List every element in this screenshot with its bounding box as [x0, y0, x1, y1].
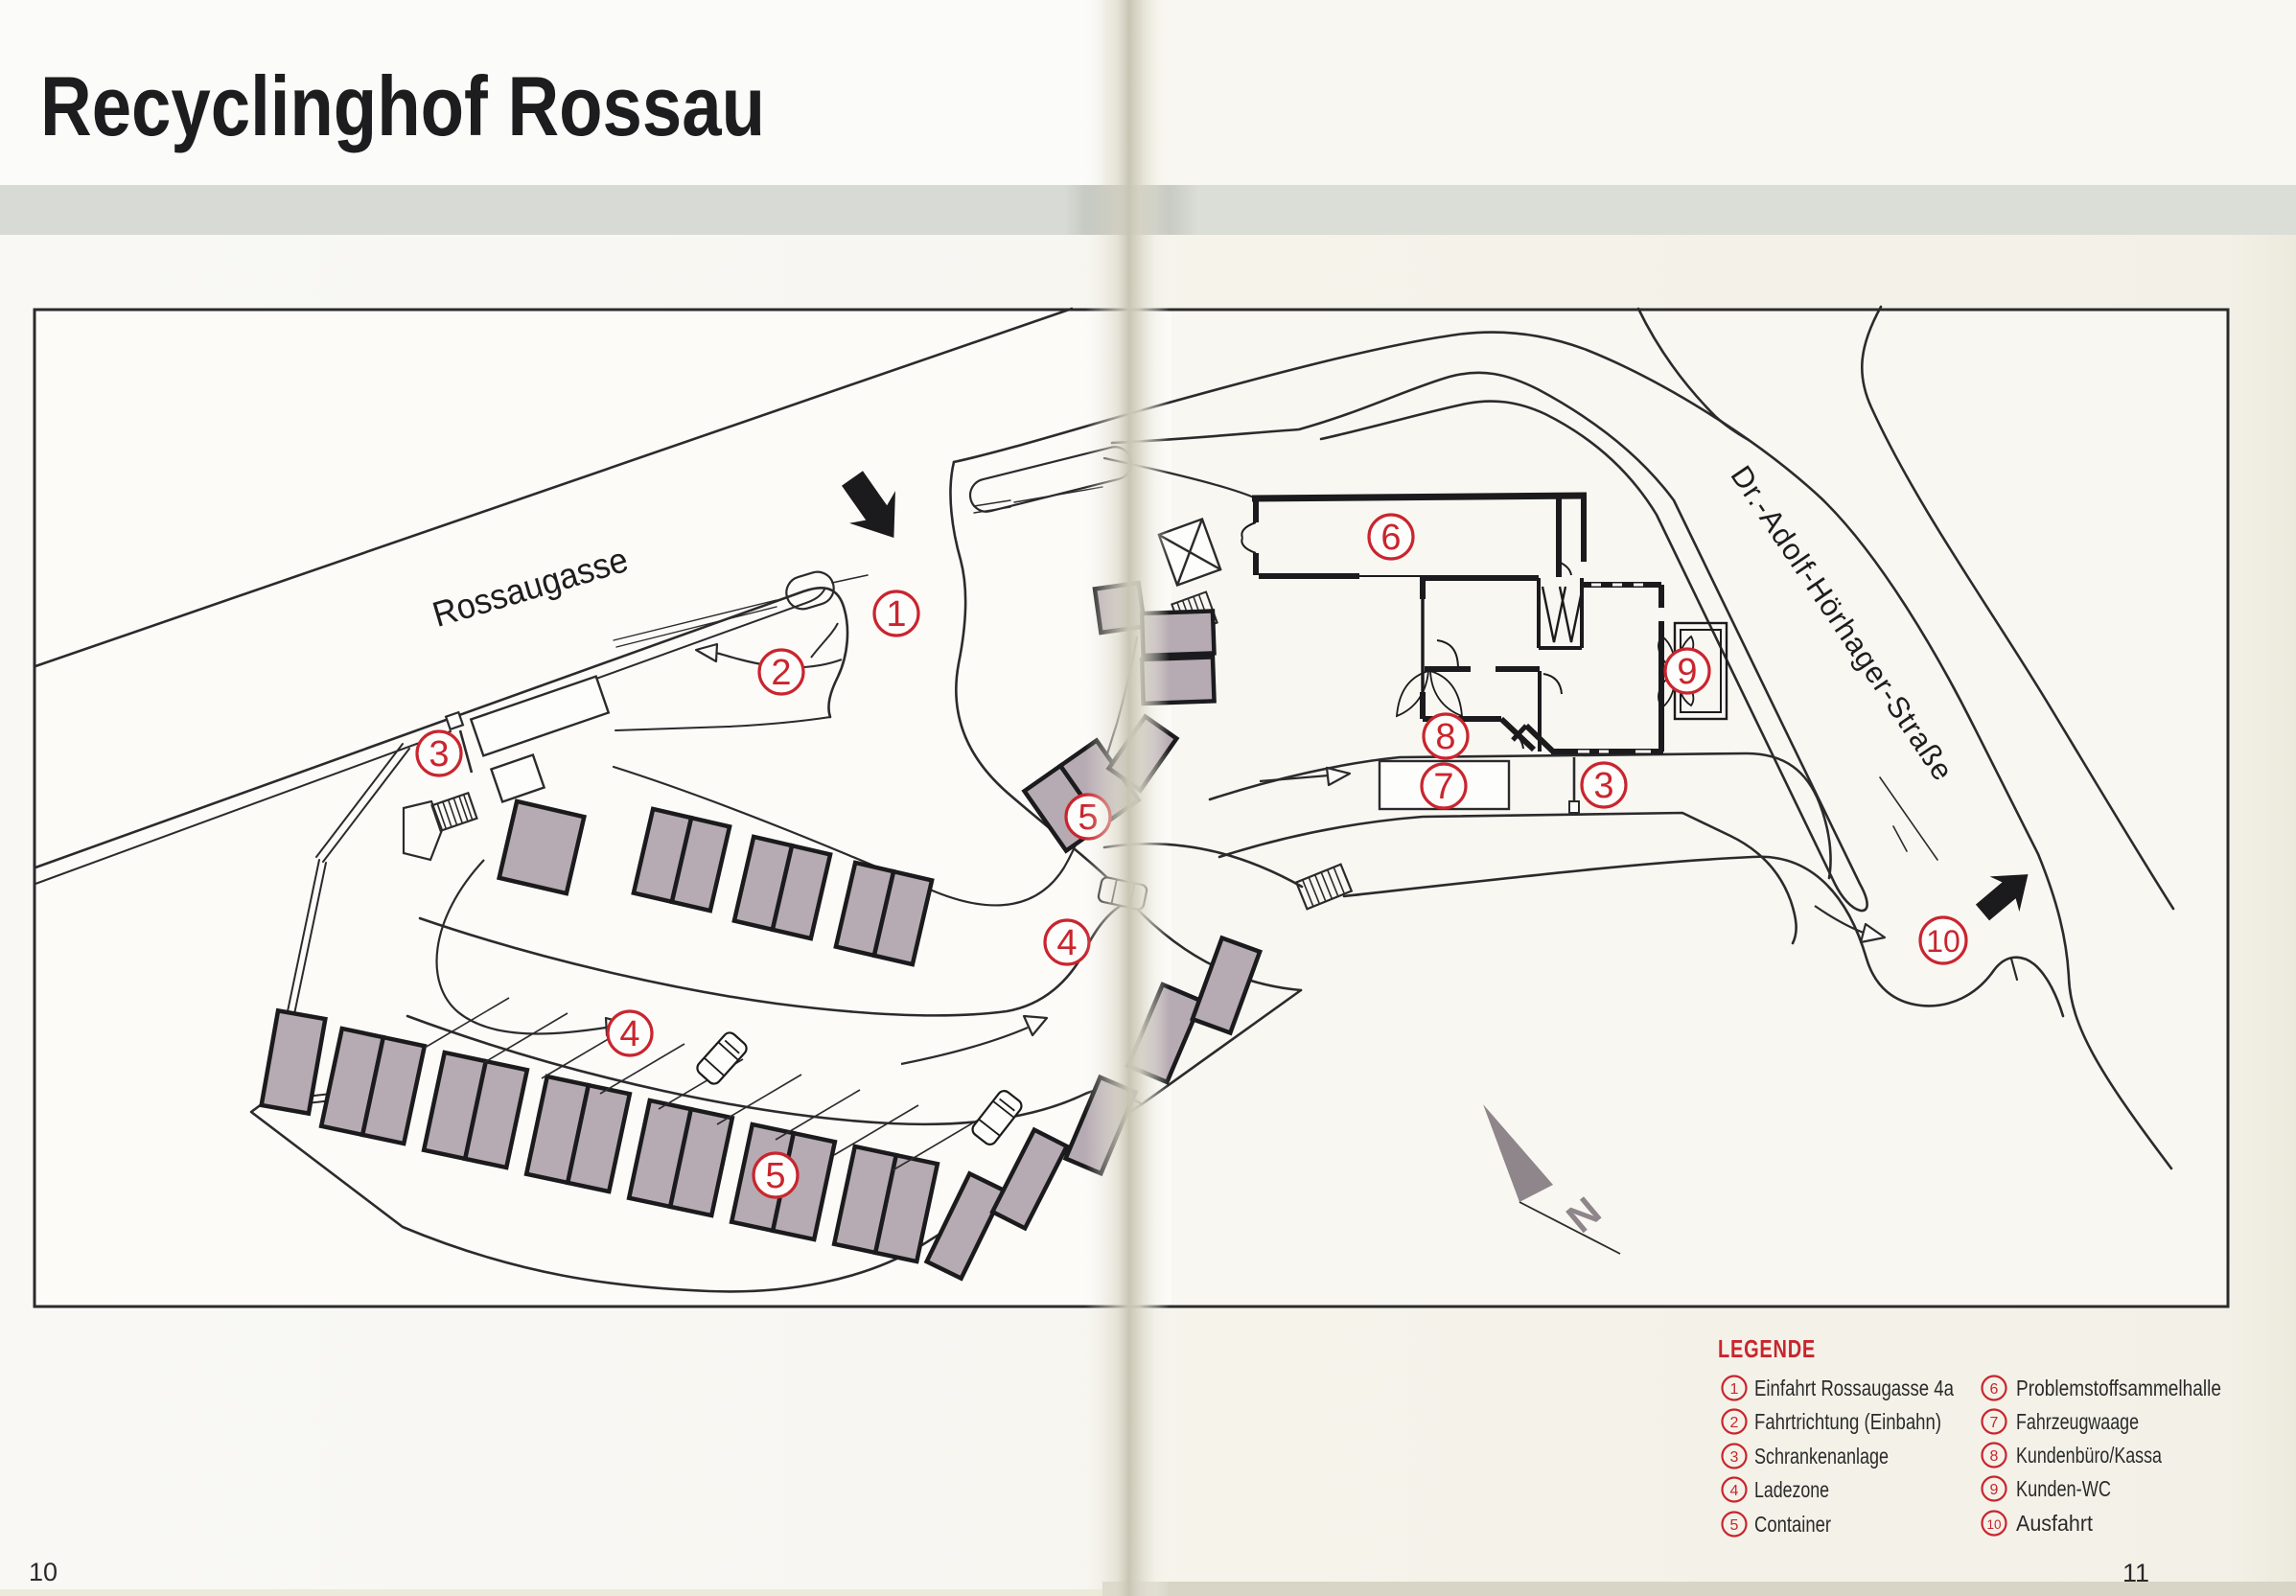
svg-text:10: 10	[1926, 924, 1960, 959]
svg-text:3: 3	[1730, 1449, 1739, 1466]
svg-text:LEGENDE: LEGENDE	[1718, 1334, 1816, 1363]
svg-text:5: 5	[765, 1156, 785, 1196]
svg-text:5: 5	[1730, 1517, 1739, 1534]
svg-text:8: 8	[1990, 1448, 1999, 1465]
svg-text:6: 6	[1380, 518, 1401, 558]
svg-text:Fahrtrichtung (Einbahn): Fahrtrichtung (Einbahn)	[1754, 1409, 1941, 1434]
svg-text:10: 10	[29, 1558, 58, 1586]
svg-text:7: 7	[1990, 1415, 1999, 1431]
svg-text:9: 9	[1990, 1482, 1999, 1498]
svg-text:Ladezone: Ladezone	[1754, 1477, 1829, 1502]
svg-text:4: 4	[619, 1014, 639, 1054]
svg-text:4: 4	[1730, 1483, 1739, 1499]
svg-text:Ausfahrt: Ausfahrt	[2016, 1511, 2094, 1536]
svg-text:7: 7	[1433, 767, 1453, 807]
svg-text:Fahrzeugwaage: Fahrzeugwaage	[2016, 1409, 2139, 1434]
svg-text:1: 1	[886, 594, 906, 635]
svg-text:Kunden-WC: Kunden-WC	[2016, 1476, 2111, 1501]
svg-text:3: 3	[429, 734, 449, 775]
svg-text:1: 1	[1730, 1381, 1739, 1398]
svg-text:Einfahrt Rossaugasse 4a: Einfahrt Rossaugasse 4a	[1754, 1376, 1954, 1400]
svg-text:8: 8	[1435, 717, 1455, 757]
svg-text:11: 11	[2122, 1559, 2149, 1587]
svg-text:9: 9	[1677, 652, 1697, 692]
svg-text:Problemstoffsammelhalle: Problemstoffsammelhalle	[2016, 1376, 2221, 1400]
svg-text:Container: Container	[1754, 1512, 1831, 1537]
svg-text:4: 4	[1056, 923, 1077, 963]
svg-text:10: 10	[1986, 1517, 2001, 1532]
svg-text:3: 3	[1593, 766, 1613, 806]
svg-text:2: 2	[771, 653, 791, 693]
svg-text:Recyclinghof Rossau: Recyclinghof Rossau	[40, 58, 765, 153]
svg-text:2: 2	[1730, 1415, 1739, 1431]
svg-text:6: 6	[1990, 1381, 1999, 1398]
svg-text:Schrankenanlage: Schrankenanlage	[1754, 1444, 1889, 1469]
svg-text:Kundenbüro/Kassa: Kundenbüro/Kassa	[2016, 1443, 2162, 1468]
